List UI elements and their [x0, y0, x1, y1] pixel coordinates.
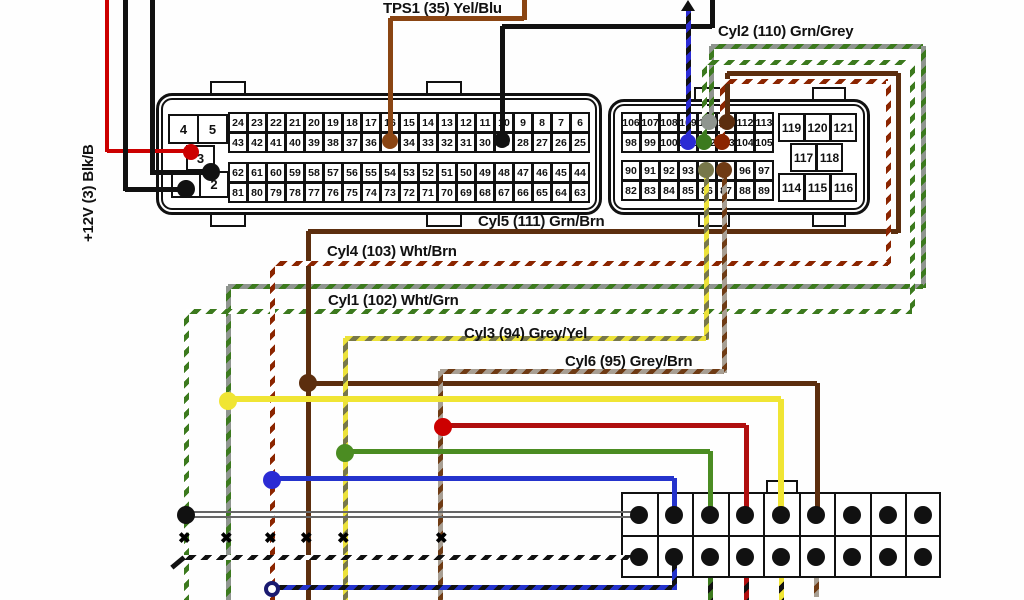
left-block0-pin-13: 13: [437, 112, 457, 133]
pin35-dot: [382, 133, 398, 149]
open-terminal: [264, 581, 280, 597]
wire-cyl5-seg1: [727, 71, 898, 76]
right-block1-pin-84: 84: [659, 180, 679, 201]
branch-yellow-coil5-seg0: [228, 396, 781, 402]
right-connector-pin-118: 118: [816, 143, 843, 172]
coil-contact-r0-c2: [665, 506, 683, 524]
splice-x-mark: ✖: [337, 531, 350, 546]
right-block1-pin-89: 89: [754, 180, 774, 201]
coil-connector-strip-midline: [621, 535, 941, 537]
left-block1-pin-48: 48: [494, 162, 514, 183]
left-connector-pin-5: 5: [197, 114, 228, 144]
coil-contact-r1-c2: [665, 548, 683, 566]
coil-contact-r1-c1: [630, 548, 648, 566]
left-block0-pin-21: 21: [285, 112, 305, 133]
left-block1-pin-61: 61: [247, 162, 267, 183]
right-block1-pin-90: 90: [621, 160, 641, 181]
left-block1-pin-46: 46: [532, 162, 552, 183]
wire-black-pin29-seg2: [500, 26, 505, 142]
right-block0-pin-106: 106: [621, 112, 641, 133]
left-block1-pin-69: 69: [456, 182, 476, 203]
wire-cyl1-seg0: [702, 62, 707, 142]
left-block1-pin-45: 45: [551, 162, 571, 183]
wire-cyl2-seg3: [228, 284, 923, 289]
pair-grey-coil1-b-seg0: [186, 516, 640, 518]
coil-contact-r0-c8: [879, 506, 897, 524]
left-block1-pin-57: 57: [323, 162, 343, 183]
stub-coil6-seg0: [814, 578, 819, 597]
right-block0-pin-108: 108: [659, 112, 679, 133]
left-block0-pin-11: 11: [475, 112, 495, 133]
wire-gnd-pin1-seg0: [123, 0, 128, 191]
stub-coil5-seg0: [779, 578, 784, 600]
right-connector-pin-119: 119: [778, 113, 805, 142]
wire-cyl5-seg5: [308, 381, 817, 386]
right-connector-pin-114: 114: [778, 173, 805, 202]
left-block0-pin-20: 20: [304, 112, 324, 133]
left-block1-pin-64: 64: [551, 182, 571, 203]
junction-cyl6-red: [434, 418, 452, 436]
left-block1-pin-71: 71: [418, 182, 438, 203]
coil-contact-r1-c8: [879, 548, 897, 566]
junction-cyl5-brown: [299, 374, 317, 392]
left-block1-pin-52: 52: [418, 162, 438, 183]
left-block0-pin-23: 23: [247, 112, 267, 133]
right-block0-pin-113: 113: [754, 112, 774, 133]
left-block1-pin-60: 60: [266, 162, 286, 183]
right-block1-pin-83: 83: [640, 180, 660, 201]
ecu-connector-left-tab-2: [210, 213, 246, 227]
wiring-diagram: 4531224232221201918171615141312111098764…: [0, 0, 1024, 600]
wire-cyl1-seg1: [704, 60, 912, 65]
label-cyl6: Cyl6 (95) Grey/Brn: [565, 353, 692, 370]
left-block0-pin-22: 22: [266, 112, 286, 133]
junction-cyl3-green: [336, 444, 354, 462]
wire-cyl4-seg0: [720, 81, 725, 142]
right-block0-pin-105: 105: [754, 132, 774, 153]
coil-contact-r1-c4: [736, 548, 754, 566]
label-tps1: TPS1 (35) Yel/Blu: [383, 0, 502, 17]
wire-black-pin29-seg1: [502, 24, 712, 29]
left-block0-pin-39: 39: [304, 132, 324, 153]
branch-green-coil3-seg0: [345, 449, 710, 454]
wire-blue-pin101-seg0: [686, 9, 691, 144]
junction-cyl4-blue: [263, 471, 281, 489]
left-block0-pin-42: 42: [247, 132, 267, 153]
wire-cyl5-seg2: [896, 73, 901, 233]
pin102-dot: [696, 134, 712, 150]
label-cyl3: Cyl3 (94) Grey/Yel: [464, 325, 587, 342]
wire-cyl2-seg4: [226, 286, 231, 600]
left-block0-pin-41: 41: [266, 132, 286, 153]
left-block0-pin-30: 30: [475, 132, 495, 153]
left-block0-pin-6: 6: [570, 112, 590, 133]
branch-red-coil4-seg1: [744, 425, 749, 517]
right-connector-pin-115: 115: [804, 173, 831, 202]
left-block0-pin-14: 14: [418, 112, 438, 133]
label-cyl5: Cyl5 (111) Grn/Brn: [478, 213, 604, 230]
left-block0-pin-38: 38: [323, 132, 343, 153]
right-block1-pin-88: 88: [735, 180, 755, 201]
right-block1-pin-97: 97: [754, 160, 774, 181]
pair-grey-coil1-a-seg0: [186, 511, 640, 513]
wire-tps1-seg2: [388, 18, 393, 144]
pin1-dot: [177, 180, 195, 198]
left-block1-pin-54: 54: [380, 162, 400, 183]
left-block0-pin-19: 19: [323, 112, 343, 133]
arrow-up-icon: [681, 0, 695, 11]
coil-contact-r1-c7: [843, 548, 861, 566]
left-block0-pin-34: 34: [399, 132, 419, 153]
coil-contact-r1-c9: [914, 548, 932, 566]
left-block0-pin-32: 32: [437, 132, 457, 153]
ecu-connector-left-tab-3: [426, 213, 462, 227]
wire-cyl4-seg1: [722, 79, 888, 84]
left-block0-pin-8: 8: [532, 112, 552, 133]
wire-cyl4-seg3: [272, 261, 888, 266]
wire-cyl2-seg2: [921, 46, 926, 288]
pin101-dot: [680, 134, 696, 150]
left-block1-pin-77: 77: [304, 182, 324, 203]
left-block1-pin-47: 47: [513, 162, 533, 183]
left-block1-pin-81: 81: [228, 182, 248, 203]
left-block1-pin-79: 79: [266, 182, 286, 203]
branch-red-coil4-seg0: [443, 423, 746, 428]
right-block1-pin-91: 91: [640, 160, 660, 181]
left-block0-pin-17: 17: [361, 112, 381, 133]
splice-x-mark: ✖: [178, 531, 191, 546]
pin103-dot: [714, 134, 730, 150]
junction-cyl1-black: [177, 506, 195, 524]
left-block1-pin-50: 50: [456, 162, 476, 183]
wire-cyl1-seg3: [186, 309, 912, 314]
left-block0-pin-24: 24: [228, 112, 248, 133]
left-block0-pin-37: 37: [342, 132, 362, 153]
splice-x-mark: ✖: [300, 531, 313, 546]
right-block1-pin-93: 93: [678, 160, 698, 181]
right-block0-pin-98: 98: [621, 132, 641, 153]
left-block1-pin-66: 66: [513, 182, 533, 203]
coil-contact-r1-c3: [701, 548, 719, 566]
left-block1-pin-72: 72: [399, 182, 419, 203]
wire-cyl3-seg2: [343, 338, 348, 600]
branch-yellow-coil5-seg1: [778, 399, 784, 517]
branch-blue-coil2-seg0: [272, 476, 674, 481]
left-block1-pin-53: 53: [399, 162, 419, 183]
left-block0-pin-12: 12: [456, 112, 476, 133]
dash-blueblack-coil2-seg0: [272, 585, 674, 590]
splice-x-mark: ✖: [220, 531, 233, 546]
wire-cyl1-seg2: [910, 62, 915, 313]
coil-contact-r0-c9: [914, 506, 932, 524]
pin111-dot: [719, 114, 735, 130]
coil-contact-r1-c6: [807, 548, 825, 566]
label-cyl4: Cyl4 (103) Wht/Brn: [327, 243, 457, 260]
pin94-dot: [698, 162, 714, 178]
left-block1-pin-65: 65: [532, 182, 552, 203]
wire-cyl2-seg0: [709, 46, 714, 122]
splice-x-mark: ✖: [264, 531, 277, 546]
left-block1-pin-59: 59: [285, 162, 305, 183]
wire-cyl6-seg2: [438, 371, 443, 600]
left-block0-pin-43: 43: [228, 132, 248, 153]
label-cyl1: Cyl1 (102) Wht/Grn: [328, 292, 459, 309]
right-block1-pin-92: 92: [659, 160, 679, 181]
coil-contact-r0-c4: [736, 506, 754, 524]
stub-coil4-seg0: [744, 578, 749, 600]
pin95-dot: [716, 162, 732, 178]
right-connector-pin-117: 117: [790, 143, 817, 172]
wire-cyl4-seg4: [270, 263, 275, 600]
dash-black-coil1-seg0: [181, 555, 640, 560]
left-block1-pin-67: 67: [494, 182, 514, 203]
right-block0-pin-99: 99: [640, 132, 660, 153]
left-block1-pin-75: 75: [342, 182, 362, 203]
left-block1-pin-74: 74: [361, 182, 381, 203]
left-block1-pin-68: 68: [475, 182, 495, 203]
coil-contact-r0-c6: [807, 506, 825, 524]
left-block0-pin-26: 26: [551, 132, 571, 153]
left-block0-pin-27: 27: [532, 132, 552, 153]
left-block0-pin-25: 25: [570, 132, 590, 153]
right-block1-pin-82: 82: [621, 180, 641, 201]
left-block1-pin-78: 78: [285, 182, 305, 203]
wire-cyl3-seg0: [704, 172, 709, 340]
left-block1-pin-63: 63: [570, 182, 590, 203]
left-block1-pin-49: 49: [475, 162, 495, 183]
left-block0-pin-36: 36: [361, 132, 381, 153]
label-12v: +12V (3) Blk/B: [80, 144, 97, 242]
left-block1-pin-70: 70: [437, 182, 457, 203]
left-block0-pin-7: 7: [551, 112, 571, 133]
label-cyl2: Cyl2 (110) Grn/Grey: [718, 23, 853, 40]
wire-12v-seg0: [105, 0, 109, 152]
right-connector-pin-121: 121: [830, 113, 857, 142]
left-block1-pin-51: 51: [437, 162, 457, 183]
left-block0-pin-31: 31: [456, 132, 476, 153]
left-block1-pin-73: 73: [380, 182, 400, 203]
left-block1-pin-76: 76: [323, 182, 343, 203]
left-block0-pin-33: 33: [418, 132, 438, 153]
left-connector-pin-4: 4: [168, 114, 199, 144]
left-block0-pin-15: 15: [399, 112, 419, 133]
pin110-dot: [701, 114, 717, 130]
wire-cyl2-seg1: [711, 44, 923, 49]
left-block0-pin-18: 18: [342, 112, 362, 133]
wire-gnd-pin2-seg0: [150, 0, 155, 175]
coil-contact-r0-c5: [772, 506, 790, 524]
right-block0-pin-104: 104: [735, 132, 755, 153]
coil-contact-r0-c7: [843, 506, 861, 524]
right-connector-pin-116: 116: [830, 173, 857, 202]
left-block1-pin-55: 55: [361, 162, 381, 183]
pin2-dot: [202, 163, 220, 181]
junction-cyl2-yellow: [219, 392, 237, 410]
pin29-dot: [494, 132, 510, 148]
pin3-dot: [183, 144, 199, 160]
right-block0-pin-112: 112: [735, 112, 755, 133]
coil-contact-r0-c1: [630, 506, 648, 524]
coil-contact-r0-c3: [701, 506, 719, 524]
wire-cyl4-seg2: [886, 81, 891, 265]
left-block0-pin-40: 40: [285, 132, 305, 153]
left-block0-pin-9: 9: [513, 112, 533, 133]
right-connector-pin-120: 120: [804, 113, 831, 142]
stub-coil3-seg0: [708, 578, 713, 600]
splice-x-mark: ✖: [435, 531, 448, 546]
left-block1-pin-58: 58: [304, 162, 324, 183]
left-block0-pin-28: 28: [513, 132, 533, 153]
ecu-connector-right-tab-3: [812, 213, 846, 227]
right-block1-pin-85: 85: [678, 180, 698, 201]
coil-contact-r1-c5: [772, 548, 790, 566]
right-block0-pin-107: 107: [640, 112, 660, 133]
right-block1-pin-96: 96: [735, 160, 755, 181]
right-block0-pin-100: 100: [659, 132, 679, 153]
left-block1-pin-44: 44: [570, 162, 590, 183]
left-block1-pin-80: 80: [247, 182, 267, 203]
left-block1-pin-56: 56: [342, 162, 362, 183]
wire-cyl5-seg6: [815, 383, 820, 517]
left-block1-pin-62: 62: [228, 162, 248, 183]
wire-cyl6-seg0: [722, 172, 727, 373]
